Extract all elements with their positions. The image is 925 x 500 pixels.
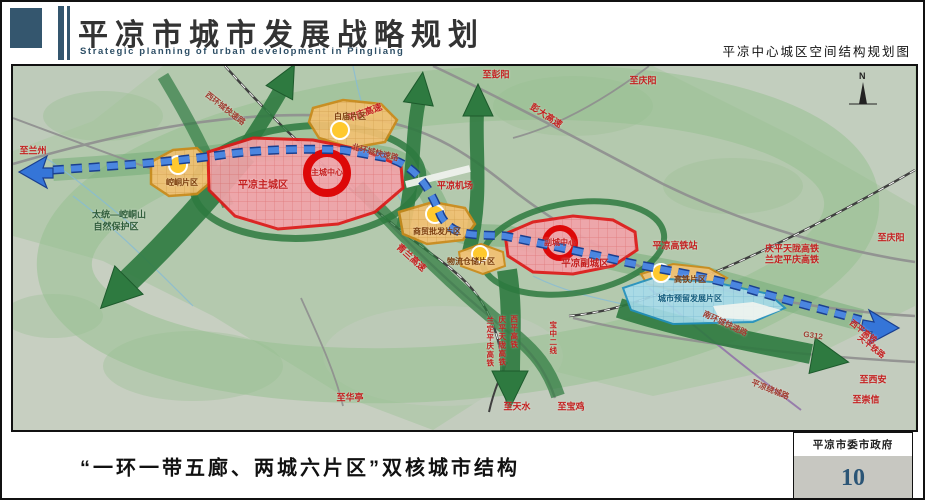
header-bar-decor-thin: [67, 6, 70, 60]
agency-name: 平凉市委市政府: [794, 433, 912, 456]
header-square-decor: [10, 8, 42, 48]
main-core-symbol: [307, 153, 347, 193]
footer-info-box: 平凉市委市政府 10: [793, 432, 913, 500]
planning-map: N 至兰州至彭阳至庆阳彭大高速平庆高速北环城快速路西环城快速路平凉机场青兰高速太…: [11, 64, 918, 432]
header-bar-decor: [58, 6, 64, 60]
page-subtitle-en: Strategic planning of urban development …: [80, 46, 404, 57]
map-caption: 平凉中心城区空间结构规划图: [722, 41, 911, 60]
page-number: 10: [794, 456, 912, 500]
planning-map-graphic: N: [13, 66, 916, 430]
structure-caption: “一环一带五廊、两城六片区”双核城市结构: [80, 452, 520, 481]
document-page: 平凉市城市发展战略规划 Strategic planning of urban …: [0, 0, 925, 500]
page-header: 平凉市城市发展战略规划 Strategic planning of urban …: [2, 2, 923, 64]
north-letter: N: [859, 71, 866, 81]
page-footer: “一环一带五廊、两城六片区”双核城市结构 平凉市委市政府 10: [2, 432, 923, 500]
